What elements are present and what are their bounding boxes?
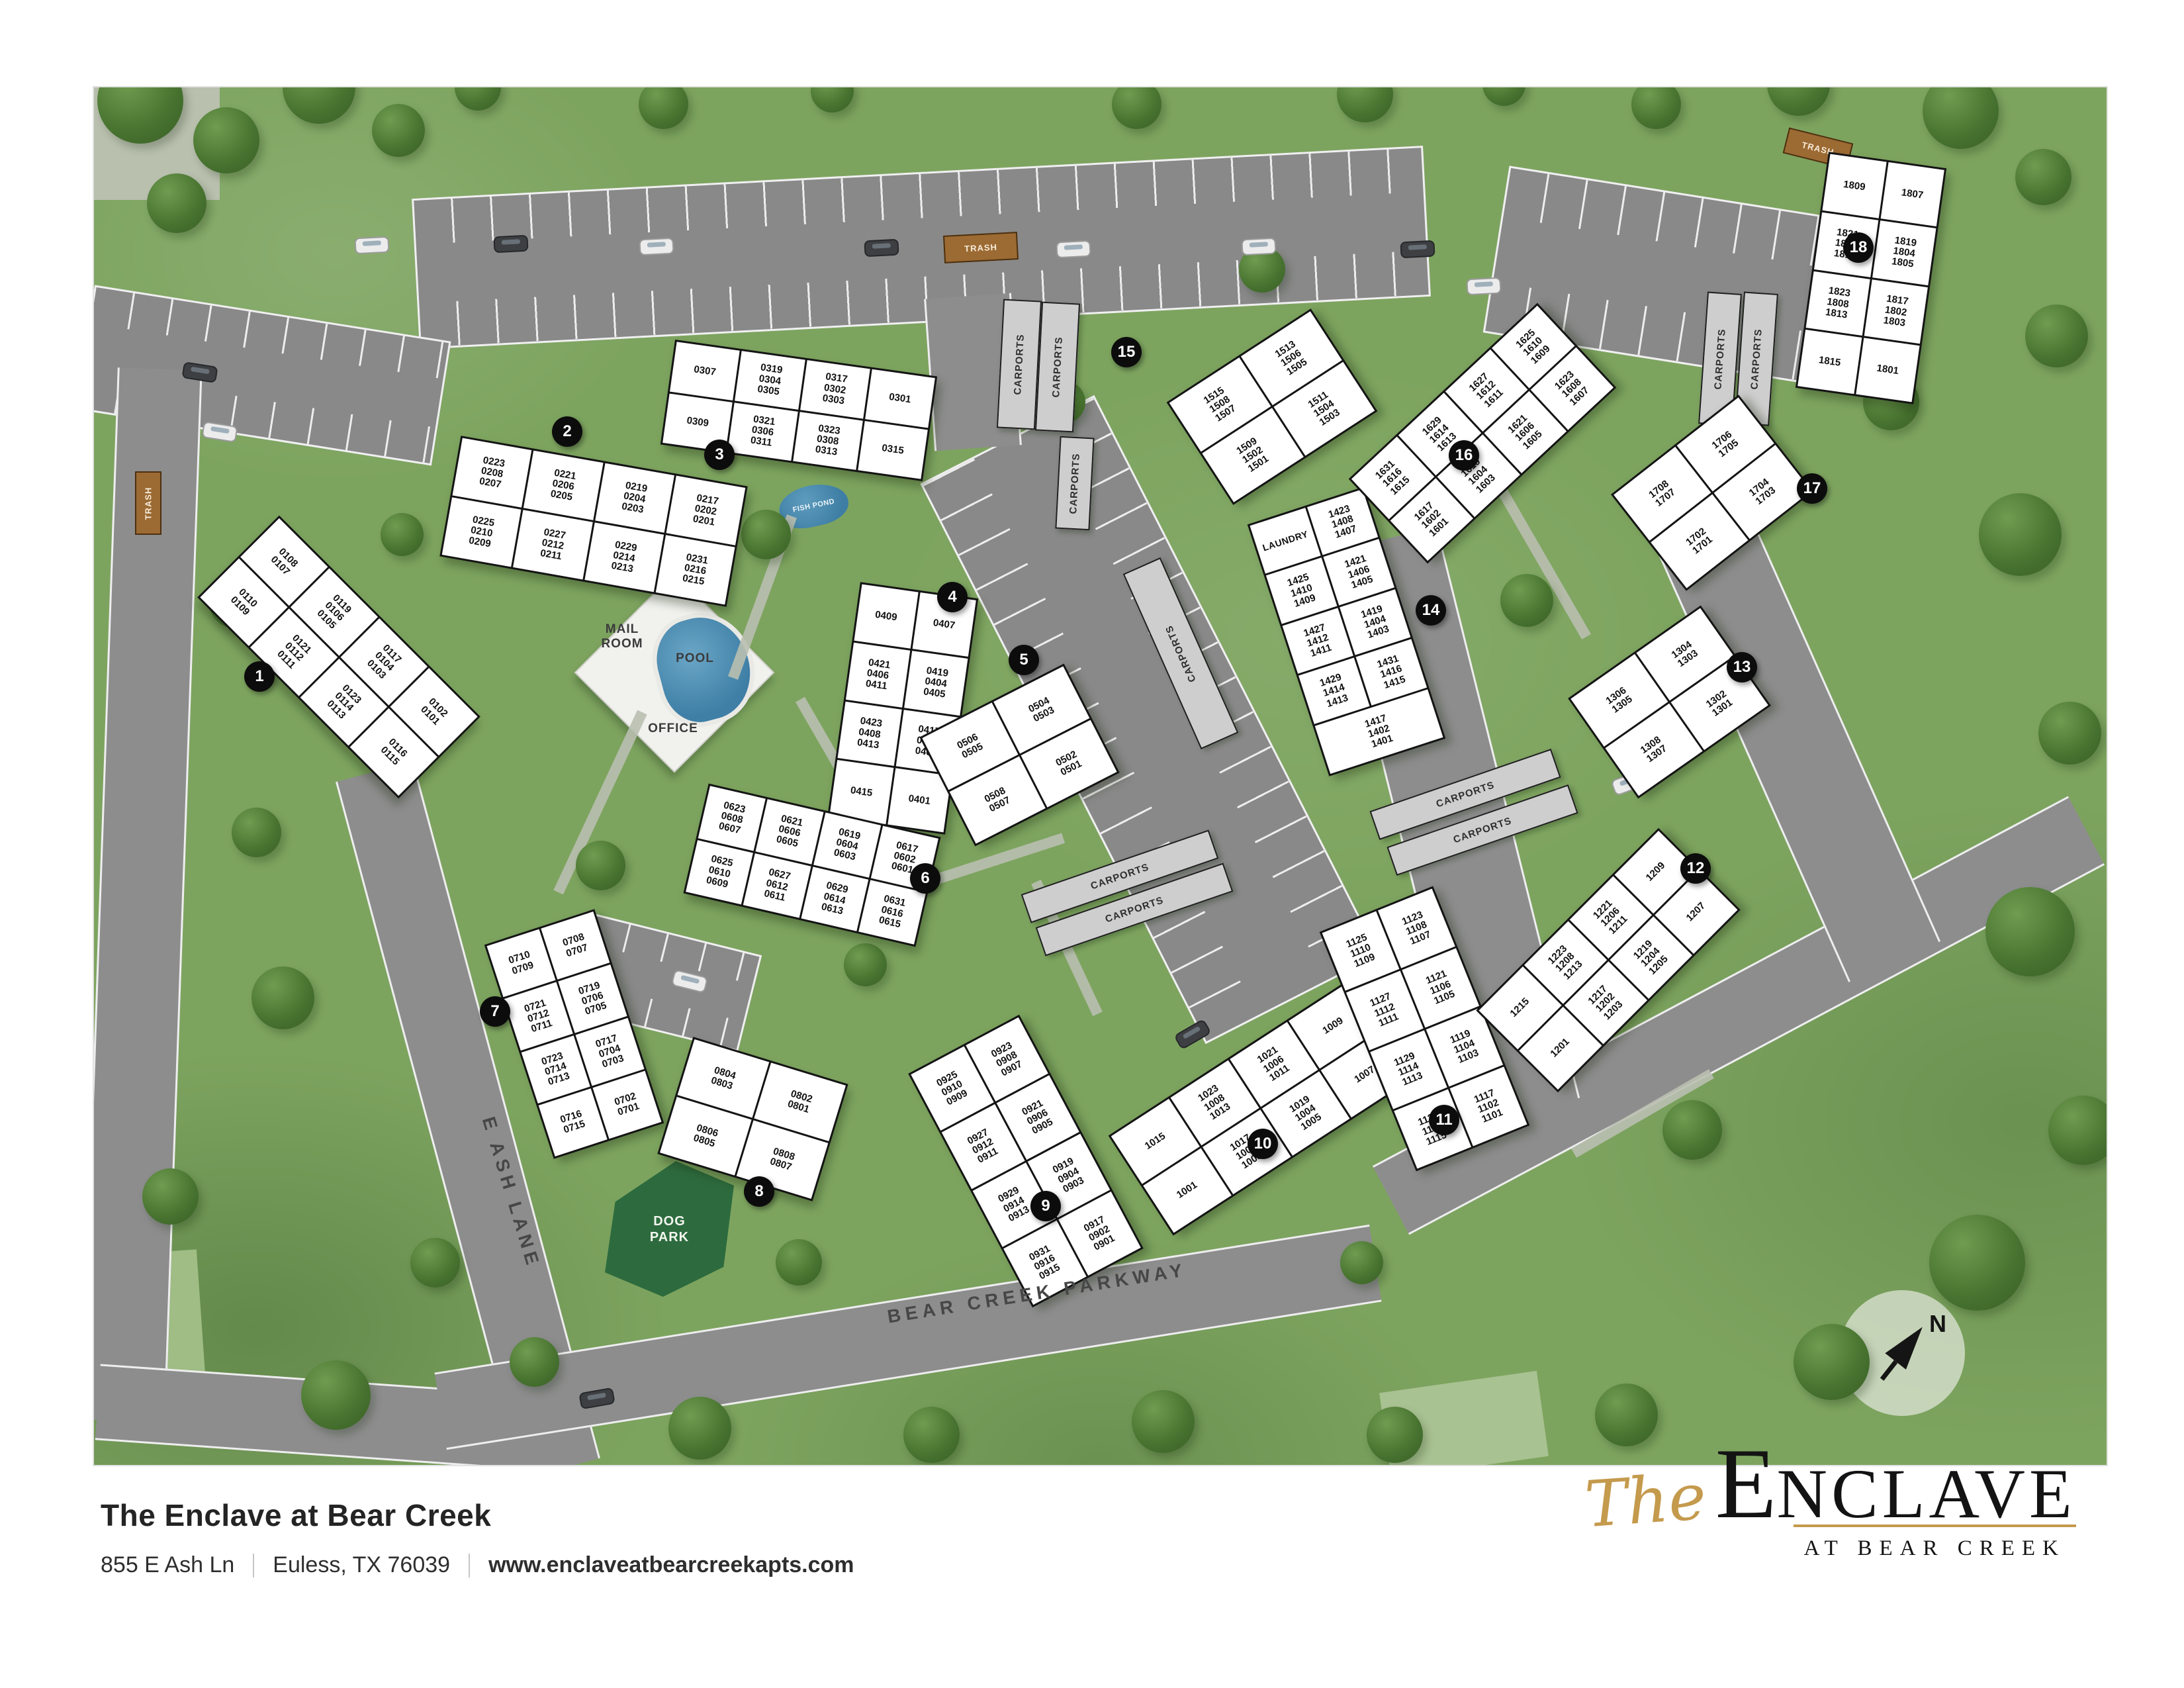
tree (283, 86, 355, 124)
unit-cell: 0315 (858, 421, 928, 479)
logo-main: ENCLAVE AT BEAR CREEK (1715, 1433, 2076, 1561)
tree (1662, 1100, 1722, 1160)
carport-label: CARPORTS (1712, 328, 1727, 389)
unit-cell: 022102060205 (523, 450, 603, 520)
car (1173, 1018, 1212, 1050)
building-9: 0925091009090923090809070927091209110921… (908, 1015, 1144, 1307)
unit-cell: 022302080207 (453, 438, 532, 507)
unit-cell: 1815 (1797, 330, 1862, 394)
carport-structure: CARPORTS (1055, 436, 1094, 531)
unit-number: 1007 (1353, 1064, 1377, 1086)
dog-park-label: DOG PARK (640, 1213, 700, 1245)
trash-label: TRASH (144, 487, 154, 520)
parking-lot (412, 146, 1431, 350)
unit-number: 1201 (1549, 1037, 1572, 1060)
logo-name: ENCLAVE (1715, 1433, 2076, 1534)
unit-cell: 062506100609 (686, 840, 753, 905)
unit-cell: 0307 (670, 342, 740, 400)
unit-number: 0305 (756, 384, 780, 398)
unit-cell: 181918041805 (1872, 220, 1936, 285)
car (354, 236, 389, 254)
unit-number: 0411 (865, 679, 887, 692)
compass-north-label: N (1929, 1310, 1946, 1338)
tree (410, 1238, 460, 1288)
laundry-label: LAUNDRY (1261, 529, 1309, 553)
unit-cell: 041904040405 (904, 651, 968, 715)
brand-logo: The ENCLAVE AT BEAR CREEK (1585, 1433, 2048, 1561)
dog-park: DOG PARK (605, 1161, 734, 1297)
unit-cell: 032103060311 (727, 402, 797, 461)
building-3: 0307031903040305031703020303030103090321… (660, 340, 937, 481)
website-text: www.enclaveatbearcreekapts.com (488, 1552, 854, 1578)
unit-number: 1807 (1901, 187, 1924, 201)
building-badge-12: 12 (1680, 853, 1711, 884)
tree (1112, 86, 1161, 129)
tree (1979, 493, 2062, 576)
unit-number: 0311 (750, 436, 772, 449)
logo-initial: E (1715, 1428, 1777, 1539)
car (864, 238, 899, 257)
unit-number: 0309 (686, 416, 709, 430)
carport-label: CARPORTS (1068, 453, 1082, 514)
building-badge-6: 6 (910, 863, 940, 894)
tree (903, 1407, 960, 1463)
divider (253, 1554, 254, 1577)
unit-cell: 022902140213 (584, 522, 664, 592)
car (1056, 240, 1091, 258)
carport-structure: CARPORTS (1035, 301, 1080, 432)
unit-cell: 062906140613 (801, 867, 868, 931)
building-badge-3: 3 (704, 440, 735, 470)
unit-cell: 021702020201 (666, 475, 745, 545)
unit-cell: 022702120211 (513, 510, 592, 579)
unit-number: 1001 (1175, 1180, 1199, 1201)
car (1241, 237, 1276, 256)
unit-number: 0401 (908, 793, 931, 807)
building-18: 1809180718211806181118191804180518231808… (1796, 152, 1946, 404)
unit-cell: 042304080413 (838, 701, 902, 765)
unit-number: 1803 (1883, 315, 1906, 329)
tree (1794, 1324, 1870, 1400)
tree (776, 1239, 822, 1286)
unit-cell: 031903040305 (735, 351, 805, 409)
tree (2025, 305, 2088, 367)
tree (510, 1337, 559, 1387)
unit-cell: 1807 (1880, 162, 1944, 226)
unit-cell: 1809 (1822, 154, 1886, 218)
unit-cell: 021902040203 (595, 463, 674, 532)
unit-number: 0211 (539, 547, 563, 562)
building-badge-11: 11 (1429, 1105, 1459, 1135)
tree (2015, 149, 2071, 205)
unit-number: 1809 (1843, 179, 1866, 193)
tree (741, 510, 791, 559)
unit-number: 0407 (933, 618, 956, 632)
unit-cell: 0301 (865, 369, 935, 428)
unit-number: 0409 (874, 610, 897, 624)
building-badge-9: 9 (1030, 1191, 1061, 1221)
unit-number: 1815 (1818, 355, 1841, 369)
unit-number: 0315 (881, 443, 904, 457)
tree (1631, 86, 1681, 129)
car (1400, 240, 1435, 258)
tree (232, 808, 281, 857)
tree (147, 173, 206, 233)
tree (455, 86, 501, 111)
carport-label: CARPORTS (1163, 623, 1198, 683)
unit-cell: 022502100209 (442, 497, 522, 567)
unit-number: 1009 (1321, 1015, 1345, 1037)
building-badge-13: 13 (1727, 652, 1757, 682)
unit-number: 1209 (1645, 860, 1668, 883)
tree (1929, 1215, 2025, 1311)
tree (1367, 1407, 1423, 1463)
divider (469, 1554, 470, 1577)
car (1466, 277, 1501, 295)
tree (844, 943, 887, 986)
building-badge-2: 2 (552, 416, 582, 447)
building-badge-18: 18 (1843, 232, 1874, 263)
tree (1500, 574, 1553, 627)
tree (372, 104, 425, 157)
carport-label: CARPORTS (1050, 336, 1065, 398)
unit-cell: 062106060605 (756, 799, 823, 864)
page: MAIL ROOM POOL OFFICE FISH POND DOG PARK… (0, 0, 2184, 1688)
compass-needle-icon (1871, 1319, 1933, 1387)
building-badge-17: 17 (1797, 473, 1827, 504)
unit-number: 1215 (1508, 996, 1531, 1019)
tree (1767, 86, 1830, 116)
building-2: 0223020802070221020602050219020402030217… (439, 436, 747, 607)
unit-cell: 1801 (1856, 338, 1920, 402)
building-badge-5: 5 (1009, 645, 1039, 675)
logo-rest: NCLAVE (1777, 1455, 2076, 1532)
unit-cell: 032303080313 (793, 412, 863, 470)
building-1: 0108010701190106010501170104010301020101… (197, 515, 480, 798)
unit-number: 0405 (923, 687, 946, 701)
unit-number: 0303 (822, 393, 845, 407)
building-badge-16: 16 (1449, 440, 1479, 471)
tree (2048, 1096, 2109, 1165)
carport-label: CARPORTS (1749, 328, 1764, 389)
tree (811, 86, 854, 113)
building-badge-7: 7 (480, 996, 510, 1027)
property-title: The Enclave at Bear Creek (101, 1497, 491, 1533)
building-17: 17081707170617051702170117041703 (1611, 395, 1814, 591)
unit-number: 0301 (888, 392, 911, 406)
tree (576, 841, 625, 890)
unit-number: 0415 (850, 785, 873, 799)
fish-pond-label: FISH POND (792, 497, 836, 514)
car (639, 237, 674, 256)
sidewalk (923, 833, 1065, 888)
trash-enclosure: TRASH (943, 232, 1019, 263)
city-text: Euless, TX 76039 (273, 1552, 450, 1578)
unit-cell: 062306080607 (698, 786, 766, 851)
pool-label: POOL (668, 651, 721, 666)
unit-number: 1015 (1143, 1131, 1167, 1152)
tree (1985, 887, 2075, 976)
unit-number: 1805 (1891, 257, 1914, 271)
tree (301, 1360, 371, 1430)
tree (381, 513, 424, 556)
unit-cell: 042104060411 (846, 643, 910, 707)
property-address-line: 855 E Ash Ln Euless, TX 76039 www.enclav… (101, 1552, 854, 1578)
unit-cell: 0409 (854, 585, 918, 649)
tree (1340, 1241, 1383, 1284)
road (435, 1225, 1382, 1450)
unit-cell: 062706120611 (743, 853, 811, 918)
building-badge-10: 10 (1248, 1129, 1278, 1159)
tree (2038, 702, 2101, 765)
unit-cell: 181718021803 (1864, 279, 1928, 344)
trash-label: TRASH (964, 242, 997, 254)
tree (668, 1397, 731, 1460)
tree (251, 966, 314, 1029)
tree (1132, 1390, 1195, 1453)
building-badge-15: 15 (1111, 337, 1142, 367)
unit-cell: 031703020303 (800, 360, 870, 418)
tree (1923, 86, 1999, 149)
unit-number: 0413 (856, 737, 880, 751)
tree (1337, 86, 1393, 122)
building-15: 1515150815071513150615051509150215011511… (1167, 308, 1378, 505)
logo-script-the: The (1582, 1460, 1708, 1542)
mail-room-label: MAIL ROOM (592, 622, 653, 651)
unit-number: 1813 (1825, 307, 1848, 321)
tree (193, 107, 259, 173)
tree (639, 86, 688, 129)
logo-tagline: AT BEAR CREEK (1794, 1536, 2076, 1561)
tree (142, 1168, 199, 1225)
carport-label: CARPORTS (1012, 334, 1026, 395)
building-badge-1: 1 (244, 661, 275, 692)
building-badge-14: 14 (1416, 595, 1446, 626)
site-map: MAIL ROOM POOL OFFICE FISH POND DOG PARK… (93, 86, 2108, 1466)
building-badge-8: 8 (744, 1176, 774, 1207)
trash-enclosure: TRASH (135, 471, 161, 535)
unit-number: 1207 (1685, 900, 1708, 923)
carport-structure: CARPORTS (997, 299, 1042, 430)
car (493, 234, 528, 253)
unit-number: 1801 (1876, 363, 1899, 377)
unit-cell: 061906040603 (813, 812, 881, 877)
unit-number: 0313 (815, 444, 838, 458)
unit-number: 0307 (693, 364, 716, 378)
tree (1482, 86, 1525, 106)
address-text: 855 E Ash Ln (101, 1552, 234, 1578)
unit-cell: 182318081813 (1806, 271, 1870, 335)
unit-cell: 023102160215 (656, 535, 735, 604)
office-label: OFFICE (637, 722, 709, 736)
building-badge-4: 4 (937, 582, 968, 612)
